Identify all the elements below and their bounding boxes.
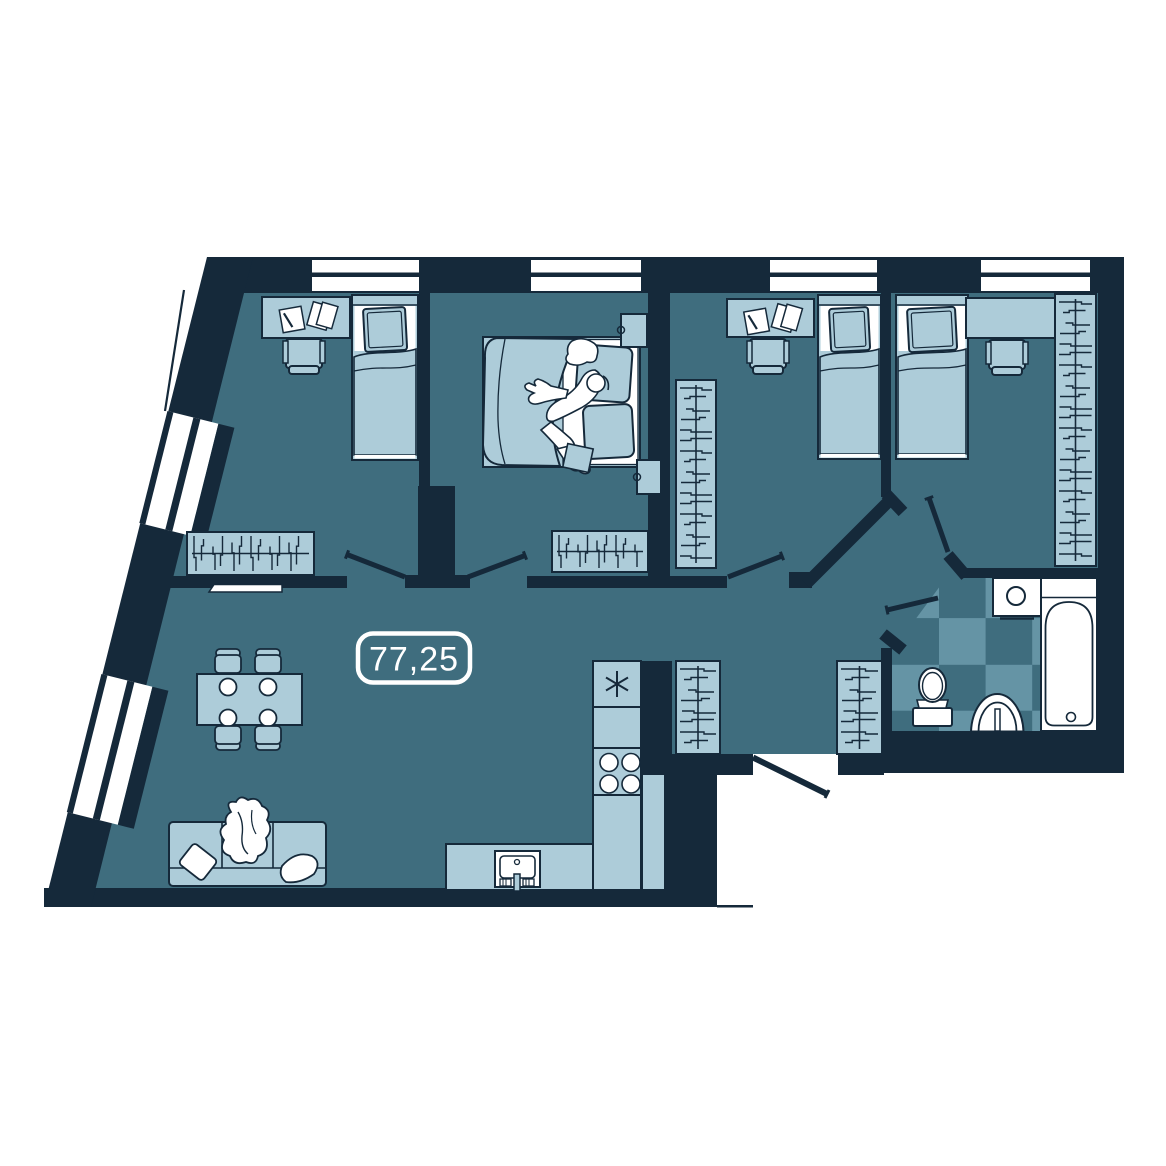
svg-text:77,25: 77,25 — [369, 641, 459, 679]
